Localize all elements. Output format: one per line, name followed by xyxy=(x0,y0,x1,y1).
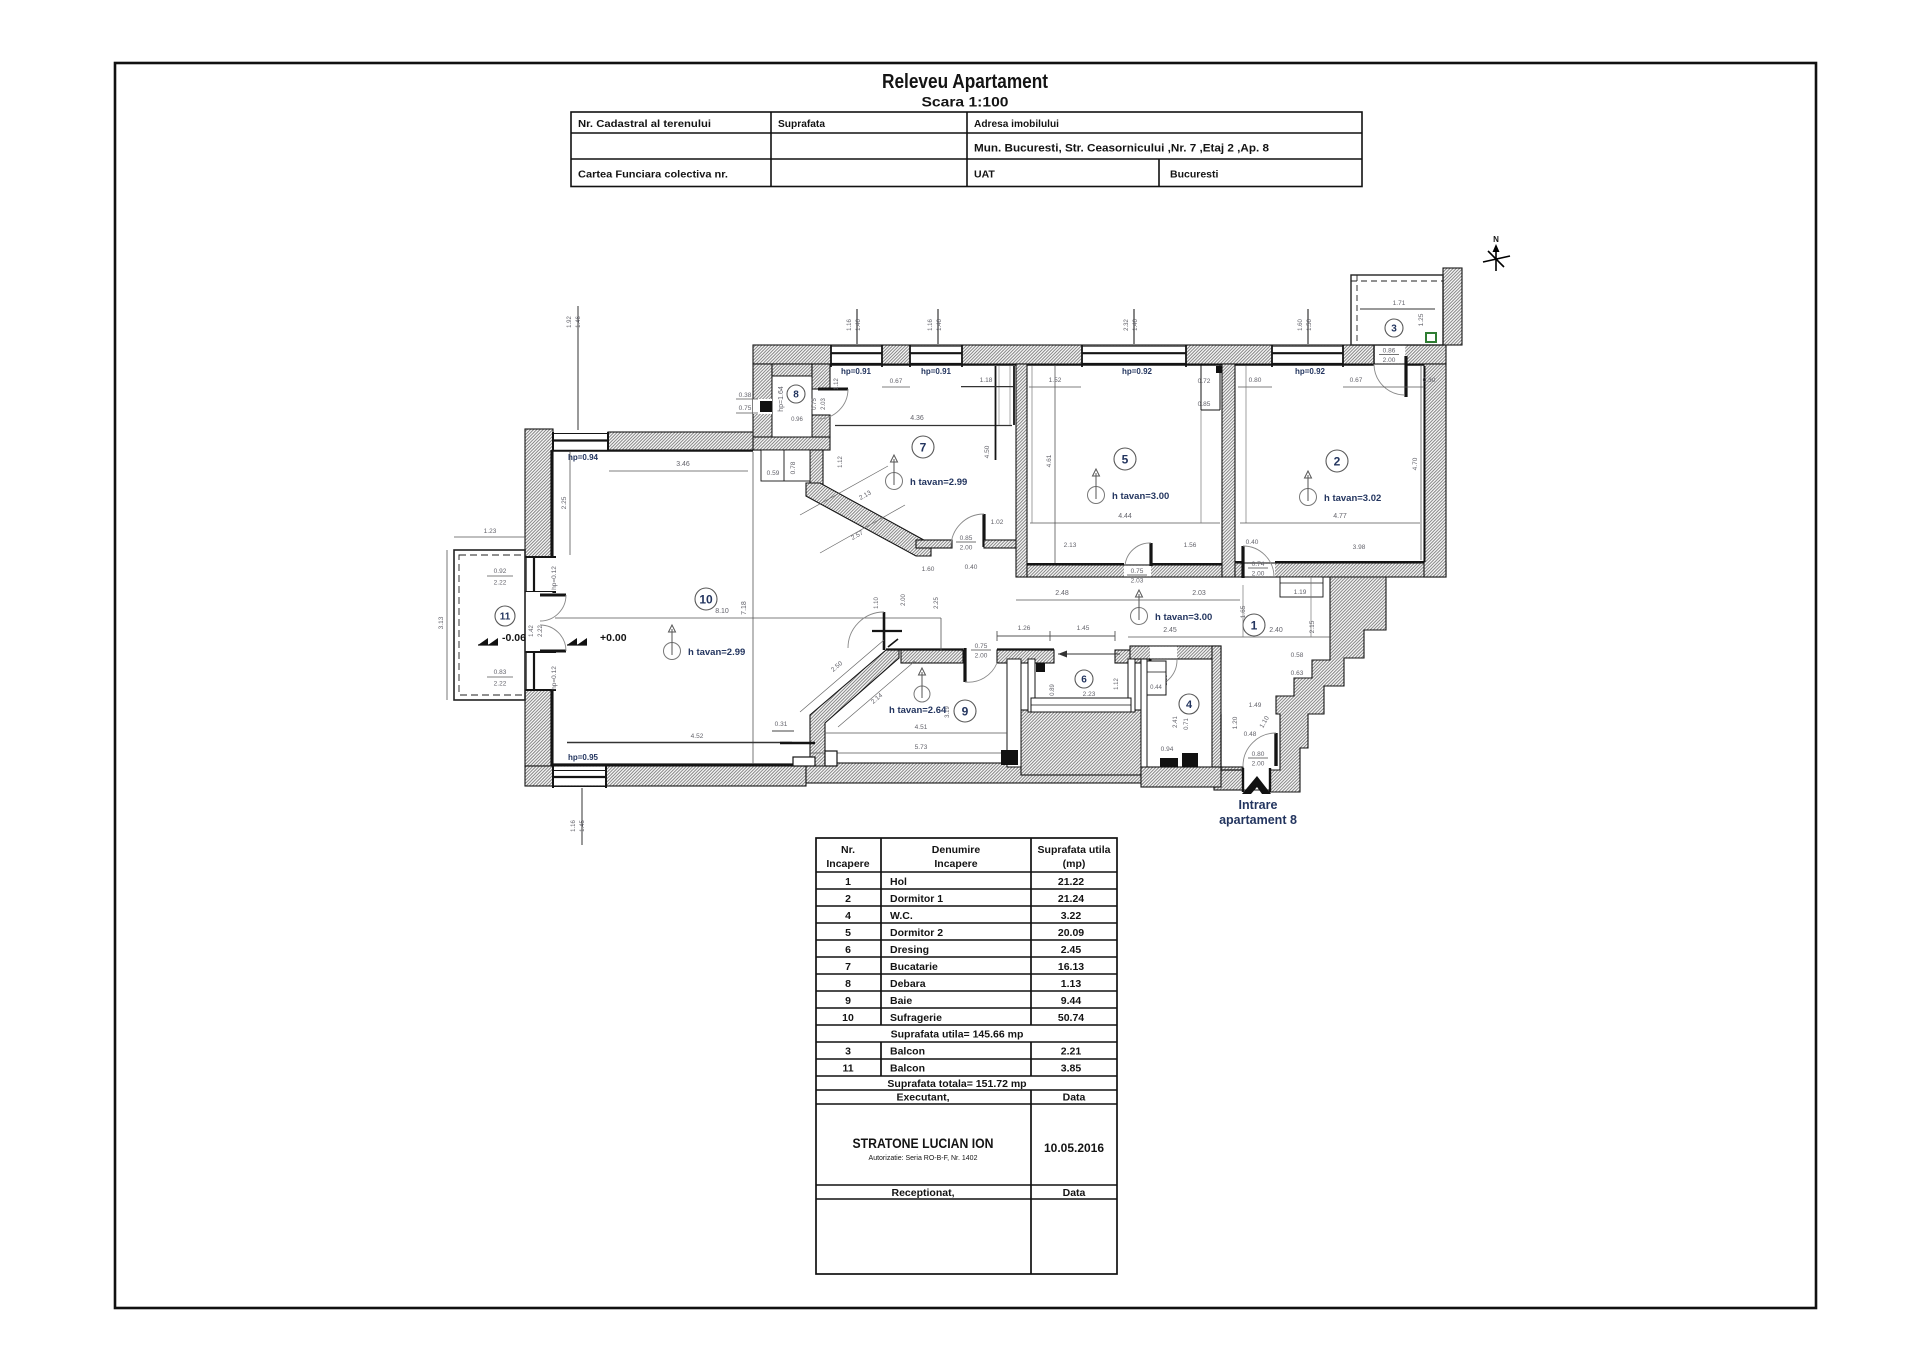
svg-text:0.75: 0.75 xyxy=(739,405,752,412)
svg-text:STRATONE LUCIAN ION: STRATONE LUCIAN ION xyxy=(853,1136,994,1151)
svg-text:1.42: 1.42 xyxy=(529,625,535,637)
svg-text:0.85: 0.85 xyxy=(1198,401,1211,408)
svg-text:Denumire: Denumire xyxy=(932,844,981,856)
svg-text:8.10: 8.10 xyxy=(715,608,729,615)
svg-text:1.49: 1.49 xyxy=(1249,702,1262,709)
svg-text:9: 9 xyxy=(962,704,969,718)
svg-text:50.74: 50.74 xyxy=(1058,1012,1084,1024)
svg-text:0.67: 0.67 xyxy=(1350,377,1363,384)
svg-text:Debara: Debara xyxy=(890,978,926,990)
svg-text:10: 10 xyxy=(842,1012,854,1024)
svg-text:2.00: 2.00 xyxy=(975,653,988,660)
svg-text:1.16: 1.16 xyxy=(928,319,934,331)
svg-text:1.60: 1.60 xyxy=(1298,319,1304,331)
svg-text:h tavan=2.99: h tavan=2.99 xyxy=(910,477,967,488)
svg-text:0.48: 0.48 xyxy=(1244,731,1257,738)
svg-text:1.45: 1.45 xyxy=(580,820,586,832)
svg-text:1.16: 1.16 xyxy=(571,820,577,832)
svg-text:0.86: 0.86 xyxy=(1383,348,1396,355)
svg-text:0.30: 0.30 xyxy=(1423,377,1436,384)
svg-text:10.05.2016: 10.05.2016 xyxy=(1044,1141,1104,1155)
svg-text:1.60: 1.60 xyxy=(922,566,935,573)
svg-text:4.36: 4.36 xyxy=(910,415,924,422)
svg-text:Executant,: Executant, xyxy=(896,1092,949,1104)
svg-text:h tavan=2.64: h tavan=2.64 xyxy=(889,705,947,716)
svg-text:3.22: 3.22 xyxy=(1061,910,1082,922)
svg-text:2.48: 2.48 xyxy=(1055,590,1069,597)
svg-text:Suprafata utila: Suprafata utila xyxy=(1038,844,1111,856)
svg-text:4.52: 4.52 xyxy=(691,733,704,740)
svg-text:0.38: 0.38 xyxy=(739,392,752,399)
svg-text:11: 11 xyxy=(842,1063,853,1075)
svg-text:Incapere: Incapere xyxy=(826,858,869,870)
svg-text:Suprafata utila= 145.66 mp: Suprafata utila= 145.66 mp xyxy=(891,1029,1024,1041)
svg-text:0.44: 0.44 xyxy=(1150,685,1162,691)
svg-text:1.23: 1.23 xyxy=(484,528,497,535)
svg-text:UAT: UAT xyxy=(974,169,995,181)
svg-text:0.78: 0.78 xyxy=(790,461,797,474)
svg-text:6: 6 xyxy=(845,944,851,956)
svg-text:3.13: 3.13 xyxy=(438,616,445,629)
svg-text:3.98: 3.98 xyxy=(1353,544,1366,551)
svg-text:(mp): (mp) xyxy=(1063,858,1086,870)
svg-text:9: 9 xyxy=(845,995,851,1007)
svg-text:0.40: 0.40 xyxy=(965,564,978,571)
svg-text:hp=0.12: hp=0.12 xyxy=(551,666,558,690)
svg-text:0.96: 0.96 xyxy=(791,417,803,423)
svg-text:2.23: 2.23 xyxy=(1083,691,1096,698)
svg-text:4.61: 4.61 xyxy=(1046,454,1053,467)
svg-text:10: 10 xyxy=(699,592,713,606)
svg-text:Intrare: Intrare xyxy=(1239,798,1278,812)
svg-text:0.89: 0.89 xyxy=(1050,684,1056,696)
svg-text:2.22: 2.22 xyxy=(538,625,544,637)
svg-text:4.51: 4.51 xyxy=(915,724,928,731)
svg-text:21.24: 21.24 xyxy=(1058,893,1084,905)
svg-text:7.18: 7.18 xyxy=(741,601,748,615)
svg-text:W.C.: W.C. xyxy=(890,910,913,922)
svg-text:6: 6 xyxy=(1081,675,1087,686)
svg-text:0.58: 0.58 xyxy=(1291,652,1304,659)
svg-text:hp=0.95: hp=0.95 xyxy=(568,753,599,762)
svg-text:1.92: 1.92 xyxy=(567,316,573,328)
svg-text:Baie: Baie xyxy=(890,995,912,1007)
svg-text:Suprafata totala= 151.72 mp: Suprafata totala= 151.72 mp xyxy=(887,1078,1026,1090)
svg-text:0.75: 0.75 xyxy=(1131,568,1144,575)
svg-text:4.77: 4.77 xyxy=(1333,513,1347,520)
svg-text:2.03: 2.03 xyxy=(1131,578,1144,585)
svg-text:Scara 1:100: Scara 1:100 xyxy=(922,94,1009,110)
svg-text:21.22: 21.22 xyxy=(1058,876,1084,888)
svg-text:2.25: 2.25 xyxy=(561,496,568,509)
svg-text:7: 7 xyxy=(845,961,851,973)
svg-text:2.00: 2.00 xyxy=(960,545,973,552)
svg-text:Data: Data xyxy=(1063,1187,1086,1199)
svg-text:4.70: 4.70 xyxy=(1412,457,1419,470)
svg-text:1.71: 1.71 xyxy=(1393,300,1406,307)
svg-text:hp=0.12: hp=0.12 xyxy=(551,566,558,590)
svg-text:hp=0.91: hp=0.91 xyxy=(841,367,872,376)
svg-text:Hol: Hol xyxy=(890,876,907,888)
svg-text:-0.06: -0.06 xyxy=(502,632,526,644)
svg-text:0.75: 0.75 xyxy=(975,643,988,650)
svg-text:2.22: 2.22 xyxy=(494,580,507,587)
svg-text:2.15: 2.15 xyxy=(1309,620,1316,633)
svg-text:2.13: 2.13 xyxy=(1064,542,1077,549)
svg-text:2.22: 2.22 xyxy=(494,681,507,688)
svg-text:1.12: 1.12 xyxy=(1114,678,1120,690)
svg-text:N: N xyxy=(1493,235,1499,244)
svg-text:Releveu Apartament: Releveu Apartament xyxy=(882,71,1048,93)
svg-text:0.71: 0.71 xyxy=(1184,718,1190,730)
svg-text:hp=0.91: hp=0.91 xyxy=(921,367,952,376)
svg-text:4: 4 xyxy=(1186,699,1193,711)
svg-text:0.94: 0.94 xyxy=(1161,746,1174,753)
svg-text:1.45: 1.45 xyxy=(1077,625,1090,632)
svg-text:Adresa imobilului: Adresa imobilului xyxy=(974,118,1059,130)
svg-text:5: 5 xyxy=(1122,452,1129,466)
svg-text:h tavan=2.99: h tavan=2.99 xyxy=(688,647,745,658)
svg-text:2.45: 2.45 xyxy=(1061,944,1082,956)
svg-text:2.00: 2.00 xyxy=(1252,761,1265,768)
svg-text:1: 1 xyxy=(845,876,851,888)
svg-text:16.13: 16.13 xyxy=(1058,961,1084,973)
svg-text:0.85: 0.85 xyxy=(960,535,973,542)
svg-text:1.46: 1.46 xyxy=(937,319,943,331)
svg-text:hp=1.64: hp=1.64 xyxy=(778,386,785,412)
svg-text:Receptionat,: Receptionat, xyxy=(891,1187,954,1199)
svg-text:3: 3 xyxy=(1391,324,1397,335)
svg-text:5: 5 xyxy=(845,927,851,939)
svg-text:h tavan=3.00: h tavan=3.00 xyxy=(1112,491,1169,502)
svg-text:Bucuresti: Bucuresti xyxy=(1170,169,1219,181)
svg-text:0.92: 0.92 xyxy=(494,568,507,575)
svg-text:2.00: 2.00 xyxy=(1383,357,1396,364)
svg-text:2.03: 2.03 xyxy=(1192,590,1206,597)
svg-text:1.52: 1.52 xyxy=(1049,377,1062,384)
svg-text:0.74: 0.74 xyxy=(1252,561,1265,568)
svg-text:Balcon: Balcon xyxy=(890,1063,925,1075)
svg-text:Dormitor 2: Dormitor 2 xyxy=(890,927,943,939)
svg-text:0.83: 0.83 xyxy=(494,669,507,676)
svg-text:1.46: 1.46 xyxy=(576,316,582,328)
svg-text:8: 8 xyxy=(793,390,799,401)
svg-text:1.19: 1.19 xyxy=(1294,589,1307,596)
svg-text:0.80: 0.80 xyxy=(1252,751,1265,758)
svg-text:11: 11 xyxy=(500,612,511,623)
svg-text:1.26: 1.26 xyxy=(1018,625,1031,632)
svg-text:1.10: 1.10 xyxy=(874,597,880,609)
svg-text:Cartea Funciara colectiva nr.: Cartea Funciara colectiva nr. xyxy=(578,169,728,181)
svg-text:1.56: 1.56 xyxy=(1184,542,1197,549)
svg-text:h tavan=3.02: h tavan=3.02 xyxy=(1324,493,1381,504)
svg-text:2.03: 2.03 xyxy=(821,398,827,410)
svg-text:1.13: 1.13 xyxy=(1061,978,1082,990)
svg-text:1.46: 1.46 xyxy=(1133,319,1139,331)
svg-text:apartament 8: apartament 8 xyxy=(1219,813,1297,827)
svg-text:7: 7 xyxy=(920,440,927,454)
svg-text:2.32: 2.32 xyxy=(1124,319,1130,331)
svg-text:2: 2 xyxy=(845,893,851,905)
svg-text:2.00: 2.00 xyxy=(1252,571,1265,578)
svg-text:Nr.: Nr. xyxy=(841,844,855,856)
svg-text:1.12: 1.12 xyxy=(838,456,844,468)
svg-text:0.75: 0.75 xyxy=(812,398,818,410)
svg-text:3.46: 3.46 xyxy=(676,461,690,468)
svg-text:Dormitor 1: Dormitor 1 xyxy=(890,893,943,905)
svg-text:2: 2 xyxy=(1334,454,1341,468)
svg-text:Data: Data xyxy=(1063,1092,1086,1104)
svg-text:hp=0.94: hp=0.94 xyxy=(568,453,599,462)
svg-text:9.44: 9.44 xyxy=(1061,995,1082,1007)
svg-text:Dresing: Dresing xyxy=(890,944,929,956)
svg-text:2.41: 2.41 xyxy=(1173,716,1179,728)
svg-text:0.31: 0.31 xyxy=(775,721,788,728)
svg-text:2.45: 2.45 xyxy=(1163,627,1177,634)
svg-text:Nr. Cadastral al terenului: Nr. Cadastral al terenului xyxy=(578,118,711,130)
svg-text:0.59: 0.59 xyxy=(767,470,780,477)
svg-text:2.21: 2.21 xyxy=(1061,1046,1082,1058)
svg-text:hp=0.92: hp=0.92 xyxy=(1122,367,1153,376)
svg-text:1.18: 1.18 xyxy=(980,377,993,384)
svg-text:1.46: 1.46 xyxy=(856,319,862,331)
svg-text:4.44: 4.44 xyxy=(1118,513,1132,520)
svg-text:1.56: 1.56 xyxy=(1307,319,1313,331)
svg-text:hp=0.92: hp=0.92 xyxy=(1295,367,1326,376)
svg-text:Autorizatie: Seria RO-B-F, Nr.: Autorizatie: Seria RO-B-F, Nr. 1402 xyxy=(869,1155,978,1162)
svg-text:0.40: 0.40 xyxy=(1246,539,1259,546)
svg-text:0.63: 0.63 xyxy=(1291,670,1304,677)
svg-text:2.00: 2.00 xyxy=(901,594,907,606)
svg-text:0.67: 0.67 xyxy=(890,378,903,385)
svg-text:1.65: 1.65 xyxy=(1240,605,1247,618)
svg-text:Sufragerie: Sufragerie xyxy=(890,1012,942,1024)
svg-text:Mun. Bucuresti, Str. Ceasornic: Mun. Bucuresti, Str. Ceasornicului ,Nr. … xyxy=(974,143,1269,155)
svg-text:+0.00: +0.00 xyxy=(600,632,627,644)
svg-text:0.72: 0.72 xyxy=(1198,378,1211,385)
svg-text:Suprafata: Suprafata xyxy=(778,118,825,130)
svg-text:1.25: 1.25 xyxy=(1418,313,1425,326)
svg-text:h tavan=3.00: h tavan=3.00 xyxy=(1155,612,1212,623)
svg-text:4: 4 xyxy=(845,910,851,922)
svg-text:1.12: 1.12 xyxy=(834,378,840,390)
svg-text:2.40: 2.40 xyxy=(1269,627,1283,634)
svg-text:4.50: 4.50 xyxy=(984,445,991,458)
svg-text:Bucatarie: Bucatarie xyxy=(890,961,938,973)
svg-text:8: 8 xyxy=(845,978,851,990)
svg-text:3.85: 3.85 xyxy=(1061,1063,1082,1075)
svg-text:0.80: 0.80 xyxy=(1249,377,1262,384)
svg-text:Incapere: Incapere xyxy=(934,858,977,870)
svg-text:Balcon: Balcon xyxy=(890,1046,925,1058)
svg-text:1.16: 1.16 xyxy=(847,319,853,331)
svg-text:5.73: 5.73 xyxy=(915,744,928,751)
svg-text:2.25: 2.25 xyxy=(934,597,940,609)
svg-text:3: 3 xyxy=(845,1046,851,1058)
svg-text:1: 1 xyxy=(1251,618,1258,632)
svg-text:1.20: 1.20 xyxy=(1232,716,1239,729)
svg-text:20.09: 20.09 xyxy=(1058,927,1084,939)
svg-text:1.02: 1.02 xyxy=(991,519,1004,526)
